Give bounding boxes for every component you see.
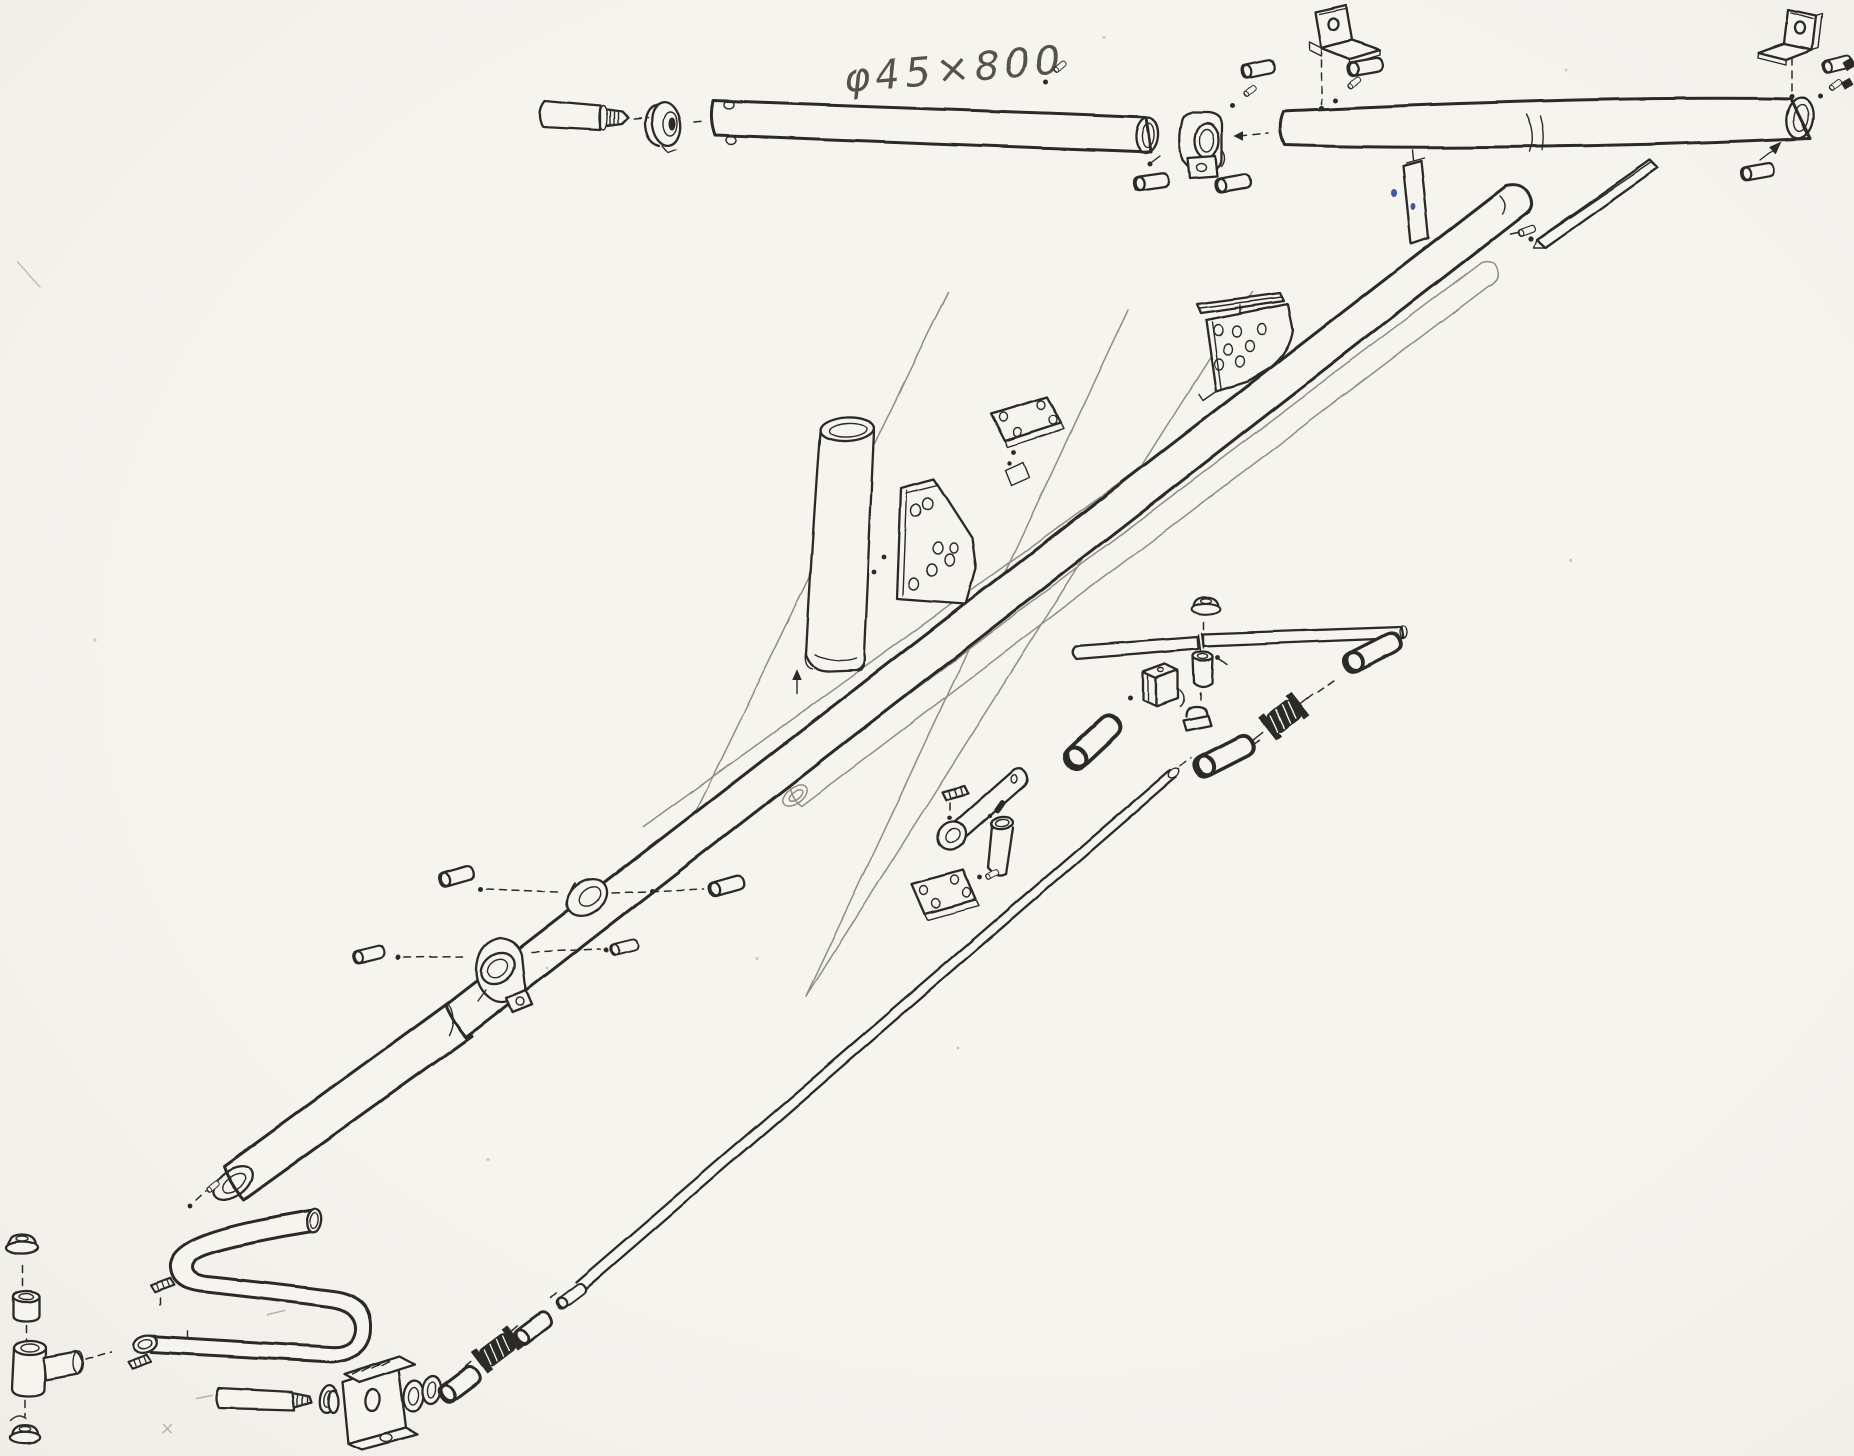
scanned-exploded-diagram: φ45×800 — [0, 0, 1854, 1456]
chamfered-cup — [977, 816, 1014, 881]
angle-bracket-upper — [1310, 5, 1380, 111]
turnbuckle-mid — [1245, 683, 1321, 751]
guide-sleeve — [1193, 652, 1213, 705]
light-diagonal-tube — [779, 261, 1498, 810]
cap-nut-mid — [1183, 706, 1211, 730]
clevis-bracket — [328, 1356, 442, 1450]
u-bracket — [1143, 664, 1184, 706]
stub-tube-lower — [1191, 733, 1262, 780]
saddle-clamp-lower — [352, 938, 639, 1012]
upper-tube-right — [1280, 96, 1816, 152]
end-plug-tube — [540, 101, 648, 130]
stub-tube-left — [1060, 696, 1132, 774]
drilled-stub-tube — [932, 769, 1027, 856]
diagram-canvas: φ45×800 — [0, 0, 1854, 1456]
elbow-fitting — [12, 1341, 112, 1396]
gusset-plate — [872, 479, 976, 604]
flat-bar-small — [1391, 150, 1429, 244]
upper-tube-left — [711, 101, 1159, 154]
flanged-collar — [645, 100, 706, 153]
dimension-annotation: φ45×800 — [842, 37, 1067, 102]
four-hole-plate-upper — [991, 397, 1064, 485]
four-hole-plate-lower — [912, 870, 978, 920]
threaded-rod — [217, 1388, 313, 1410]
cap-nut-stack — [6, 1235, 40, 1443]
vertical-post-tube — [793, 416, 875, 694]
turnbuckle-lower — [437, 1282, 588, 1405]
angle-bracket-corner — [1758, 10, 1822, 100]
saddle-clamp-upper — [1180, 113, 1268, 178]
main-diagonal-tube — [208, 185, 1532, 1206]
